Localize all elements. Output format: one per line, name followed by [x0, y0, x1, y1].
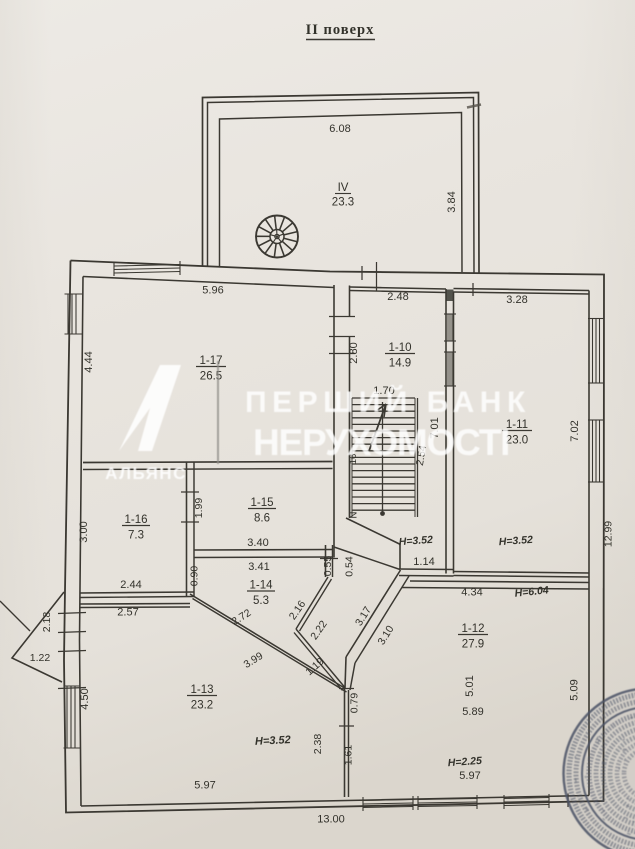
svg-text:N: N — [349, 511, 360, 518]
svg-text:14.9: 14.9 — [389, 358, 411, 370]
svg-text:1.99: 1.99 — [193, 498, 205, 519]
svg-text:3.84: 3.84 — [446, 191, 458, 212]
svg-text:2.80: 2.80 — [348, 342, 360, 363]
svg-text:1-15: 1-15 — [250, 497, 273, 509]
svg-text:1-17: 1-17 — [199, 355, 222, 367]
svg-text:1-14: 1-14 — [249, 580, 273, 592]
svg-text:ІІ поверх: ІІ поверх — [306, 22, 375, 38]
svg-text:ПЕРШИЙ БАНК: ПЕРШИЙ БАНК — [245, 385, 531, 419]
svg-text:7.3: 7.3 — [128, 530, 144, 542]
svg-text:1-16: 1-16 — [124, 514, 147, 526]
svg-text:2.18: 2.18 — [41, 612, 53, 633]
svg-text:1-13: 1-13 — [190, 684, 213, 696]
svg-text:АЛЬЯНС: АЛЬЯНС — [105, 464, 187, 483]
svg-text:4.44: 4.44 — [83, 351, 95, 372]
svg-text:5.96: 5.96 — [202, 285, 223, 297]
svg-text:23.3: 23.3 — [332, 197, 354, 209]
svg-text:5.09: 5.09 — [569, 679, 581, 700]
svg-text:3.40: 3.40 — [247, 537, 268, 549]
svg-text:5.89: 5.89 — [462, 706, 483, 718]
svg-text:1-10: 1-10 — [388, 342, 411, 354]
svg-text:5.3: 5.3 — [253, 595, 269, 607]
svg-text:1.22: 1.22 — [30, 652, 51, 664]
svg-text:2.44: 2.44 — [120, 579, 141, 591]
svg-text:27.9: 27.9 — [462, 639, 484, 651]
svg-text:5.97: 5.97 — [459, 770, 480, 782]
svg-text:0.54: 0.54 — [344, 556, 356, 577]
svg-text:0.79: 0.79 — [349, 693, 361, 714]
svg-text:2.48: 2.48 — [387, 291, 408, 303]
svg-text:7.02: 7.02 — [569, 420, 581, 441]
svg-text:8.6: 8.6 — [254, 513, 270, 525]
svg-text:2.57: 2.57 — [117, 607, 138, 619]
svg-text:3.00: 3.00 — [78, 521, 90, 542]
svg-text:23.2: 23.2 — [191, 700, 213, 712]
svg-text:0.90: 0.90 — [189, 566, 201, 587]
svg-text:13.00: 13.00 — [317, 814, 345, 826]
svg-text:12.99: 12.99 — [603, 521, 615, 547]
svg-text:Н=2.25: Н=2.25 — [447, 755, 482, 769]
svg-text:1.14: 1.14 — [413, 556, 434, 568]
svg-text:3.41: 3.41 — [248, 561, 269, 573]
svg-text:НЕРУХОМОСТІ: НЕРУХОМОСТІ — [253, 422, 509, 463]
svg-text:Н=3.52: Н=3.52 — [498, 534, 533, 548]
svg-text:5.01: 5.01 — [464, 675, 476, 696]
svg-text:4.34: 4.34 — [461, 587, 482, 599]
svg-text:1-12: 1-12 — [461, 623, 484, 635]
svg-text:3.28: 3.28 — [506, 294, 527, 306]
svg-text:Н=3.52: Н=3.52 — [255, 734, 291, 748]
svg-text:IV: IV — [338, 182, 349, 194]
svg-text:Н=3.52: Н=3.52 — [398, 534, 433, 548]
svg-text:6.08: 6.08 — [329, 123, 350, 135]
svg-text:4.50: 4.50 — [79, 688, 91, 709]
svg-text:1.61: 1.61 — [343, 745, 355, 766]
svg-text:2.38: 2.38 — [312, 734, 324, 755]
svg-text:0.55: 0.55 — [322, 556, 334, 577]
svg-text:1-11: 1-11 — [506, 419, 528, 431]
svg-text:5.97: 5.97 — [194, 780, 215, 792]
